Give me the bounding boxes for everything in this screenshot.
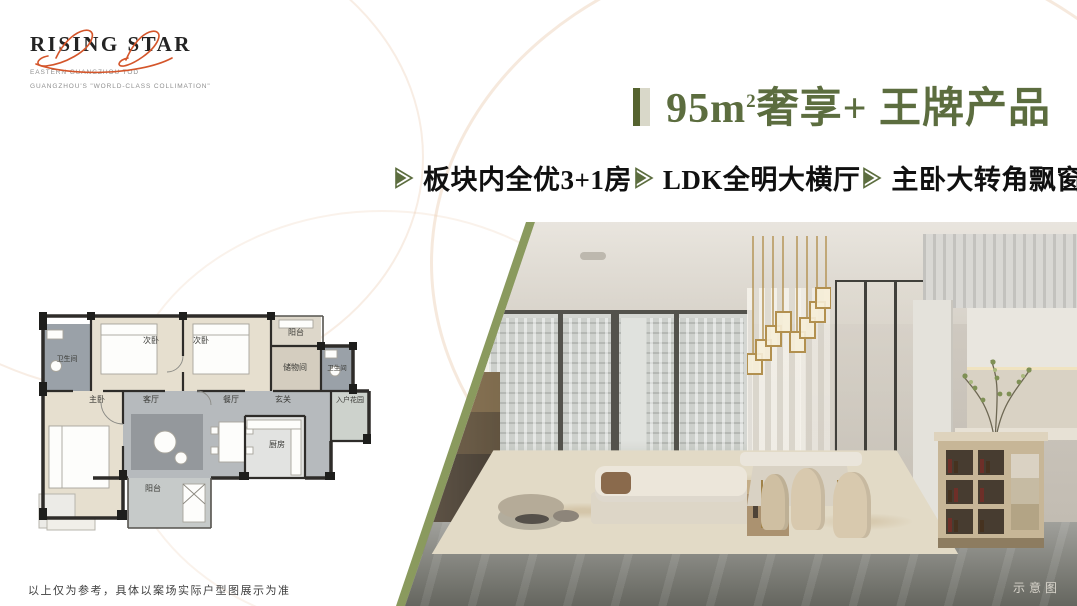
headline-rest: 奢享+ 王牌产品 xyxy=(757,86,1051,132)
wine-bottle xyxy=(954,461,958,473)
arrow-bullet-icon xyxy=(632,167,654,189)
room-label: 餐厅 xyxy=(223,395,239,404)
feature-item: 主卧大转角飘窗 xyxy=(860,158,1077,197)
interior-photo: 示意图 xyxy=(395,222,1077,606)
headline-bar-dark xyxy=(633,88,640,126)
wine-bottle xyxy=(980,459,984,473)
arrow-bullet-icon xyxy=(860,167,882,189)
pendant-lights xyxy=(747,236,831,426)
headline-bar-light xyxy=(640,88,650,126)
feature-item: LDK全明大横厅 xyxy=(632,158,861,197)
feature-label: LDK全明大横厅 xyxy=(663,158,861,197)
coffee-table-base xyxy=(515,514,549,524)
wine-bottle xyxy=(980,520,984,532)
headline-text: 95m2奢享+ 王牌产品 xyxy=(666,74,1051,135)
brand-subtitle-line2: GUANGZHOU'S "WORLD-CLASS COLLIMATION" xyxy=(30,80,211,94)
sofa-pillow xyxy=(601,472,631,494)
slide: RISING STAR EASTERN GUANGZHOU TOD GUANGZ… xyxy=(0,0,1077,606)
room-label: 次卧 xyxy=(193,335,209,345)
wine-cubby xyxy=(978,450,1005,475)
room-label: 卫生间 xyxy=(57,354,78,363)
arrow-bullet-icon xyxy=(392,167,414,189)
wine-bottle xyxy=(948,518,952,532)
dining-chair xyxy=(833,472,871,538)
room-label: 储物间 xyxy=(283,362,307,372)
kitchen-ceiling xyxy=(923,234,1077,308)
wine-bottle xyxy=(986,461,990,473)
brand-logo: RISING STAR EASTERN GUANGZHOU TOD GUANGZ… xyxy=(30,32,211,93)
room-label: 入户花园 xyxy=(336,395,364,404)
room-label: 客厅 xyxy=(143,394,159,404)
headline-sup: 2 xyxy=(746,91,757,112)
room-label: 玄关 xyxy=(275,394,291,404)
island-countertop xyxy=(934,432,1048,441)
wine-bottle xyxy=(948,459,952,473)
room-label: 阳台 xyxy=(288,327,304,337)
wine-bottle xyxy=(954,520,958,532)
room-label: 主卧 xyxy=(89,394,105,404)
room-label: 卫生间 xyxy=(327,363,347,372)
headline-area: 95m xyxy=(666,86,746,132)
dining-chair xyxy=(761,474,789,530)
feature-label: 主卧大转角飘窗 xyxy=(891,158,1077,197)
photo-caption: 示意图 xyxy=(1013,579,1061,596)
feature-label: 板块内全优3+1房 xyxy=(423,158,632,197)
feature-item: 板块内全优3+1房 xyxy=(392,158,632,197)
interior-photo-scene: 示意图 xyxy=(395,222,1077,606)
room-label: 阳台 xyxy=(145,483,161,493)
side-stool xyxy=(553,510,579,522)
brand-subtitle: EASTERN GUANGZHOU TOD GUANGZHOU'S "WORLD… xyxy=(30,66,211,93)
wine-cubby xyxy=(978,509,1005,534)
dining-chair xyxy=(791,468,825,530)
brand-subtitle-line1: EASTERN GUANGZHOU TOD xyxy=(30,66,211,80)
wine-bottle xyxy=(948,490,952,502)
dining-table xyxy=(740,452,862,466)
headline-bar-icon xyxy=(633,88,650,126)
wine-cubby xyxy=(946,480,973,505)
floorplan: 卫生间 次卧 次卧 阳台 储物间 卫生间 主卧 客厅 餐厅 玄关 入户花园 厨房… xyxy=(33,296,371,546)
wine-bottle xyxy=(980,488,984,502)
wine-cubby xyxy=(946,509,973,534)
wine-cubbies xyxy=(946,450,1004,534)
wine-bottle xyxy=(954,488,958,502)
disclaimer-text: 以上仅为参考，具体以案场实际户型图展示为准 xyxy=(28,582,291,598)
brand-wordmark: RISING STAR xyxy=(30,32,211,57)
room-label: 厨房 xyxy=(269,439,285,449)
headline: 95m2奢享+ 王牌产品 xyxy=(633,74,1051,135)
brand-title: RISING STAR xyxy=(30,32,192,56)
feature-list: 板块内全优3+1房 LDK全明大横厅 主卧大转角飘窗 xyxy=(392,158,1051,197)
ceiling-spotlight xyxy=(580,252,606,260)
glassware-shelf xyxy=(1011,454,1039,530)
wine-cubby xyxy=(978,480,1005,505)
room-label: 次卧 xyxy=(143,335,159,345)
wine-cubby xyxy=(946,450,973,475)
